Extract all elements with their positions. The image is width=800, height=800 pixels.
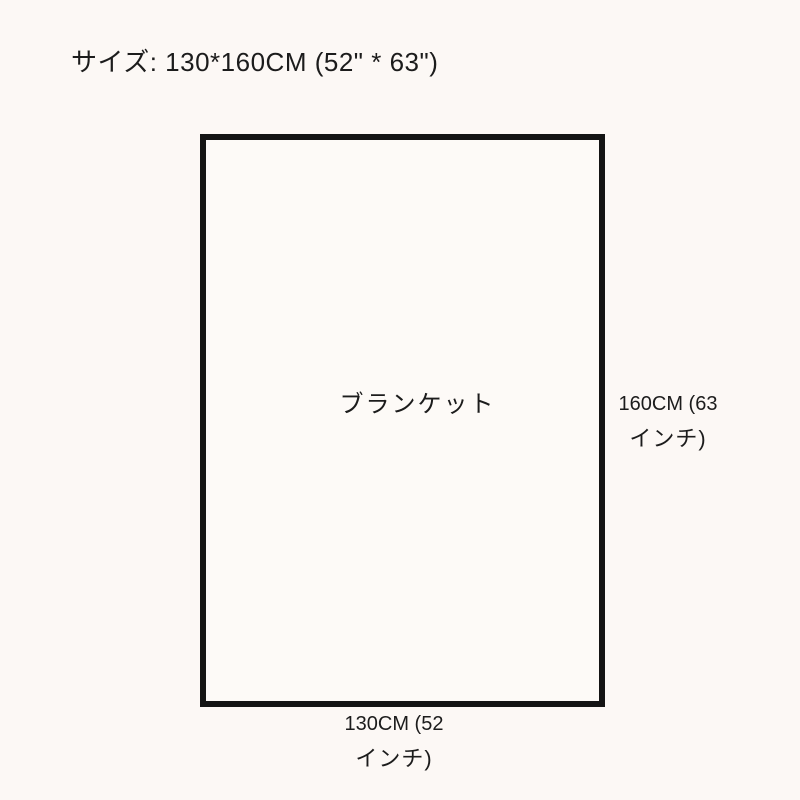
height-dimension-label: 160CM (63 インチ) (608, 388, 728, 458)
size-title: サイズ: 130*160CM (52" * 63") (71, 42, 438, 79)
width-dimension-label: 130CM (52 インチ) (294, 708, 494, 778)
height-dimension-value: 160CM (63 (608, 388, 728, 420)
blanket-label: ブランケット (340, 384, 496, 419)
width-dimension-value: 130CM (52 (294, 708, 494, 740)
height-dimension-unit: インチ) (608, 420, 728, 458)
width-dimension-unit: インチ) (294, 740, 494, 778)
blanket-rectangle: ブランケット (200, 134, 605, 707)
